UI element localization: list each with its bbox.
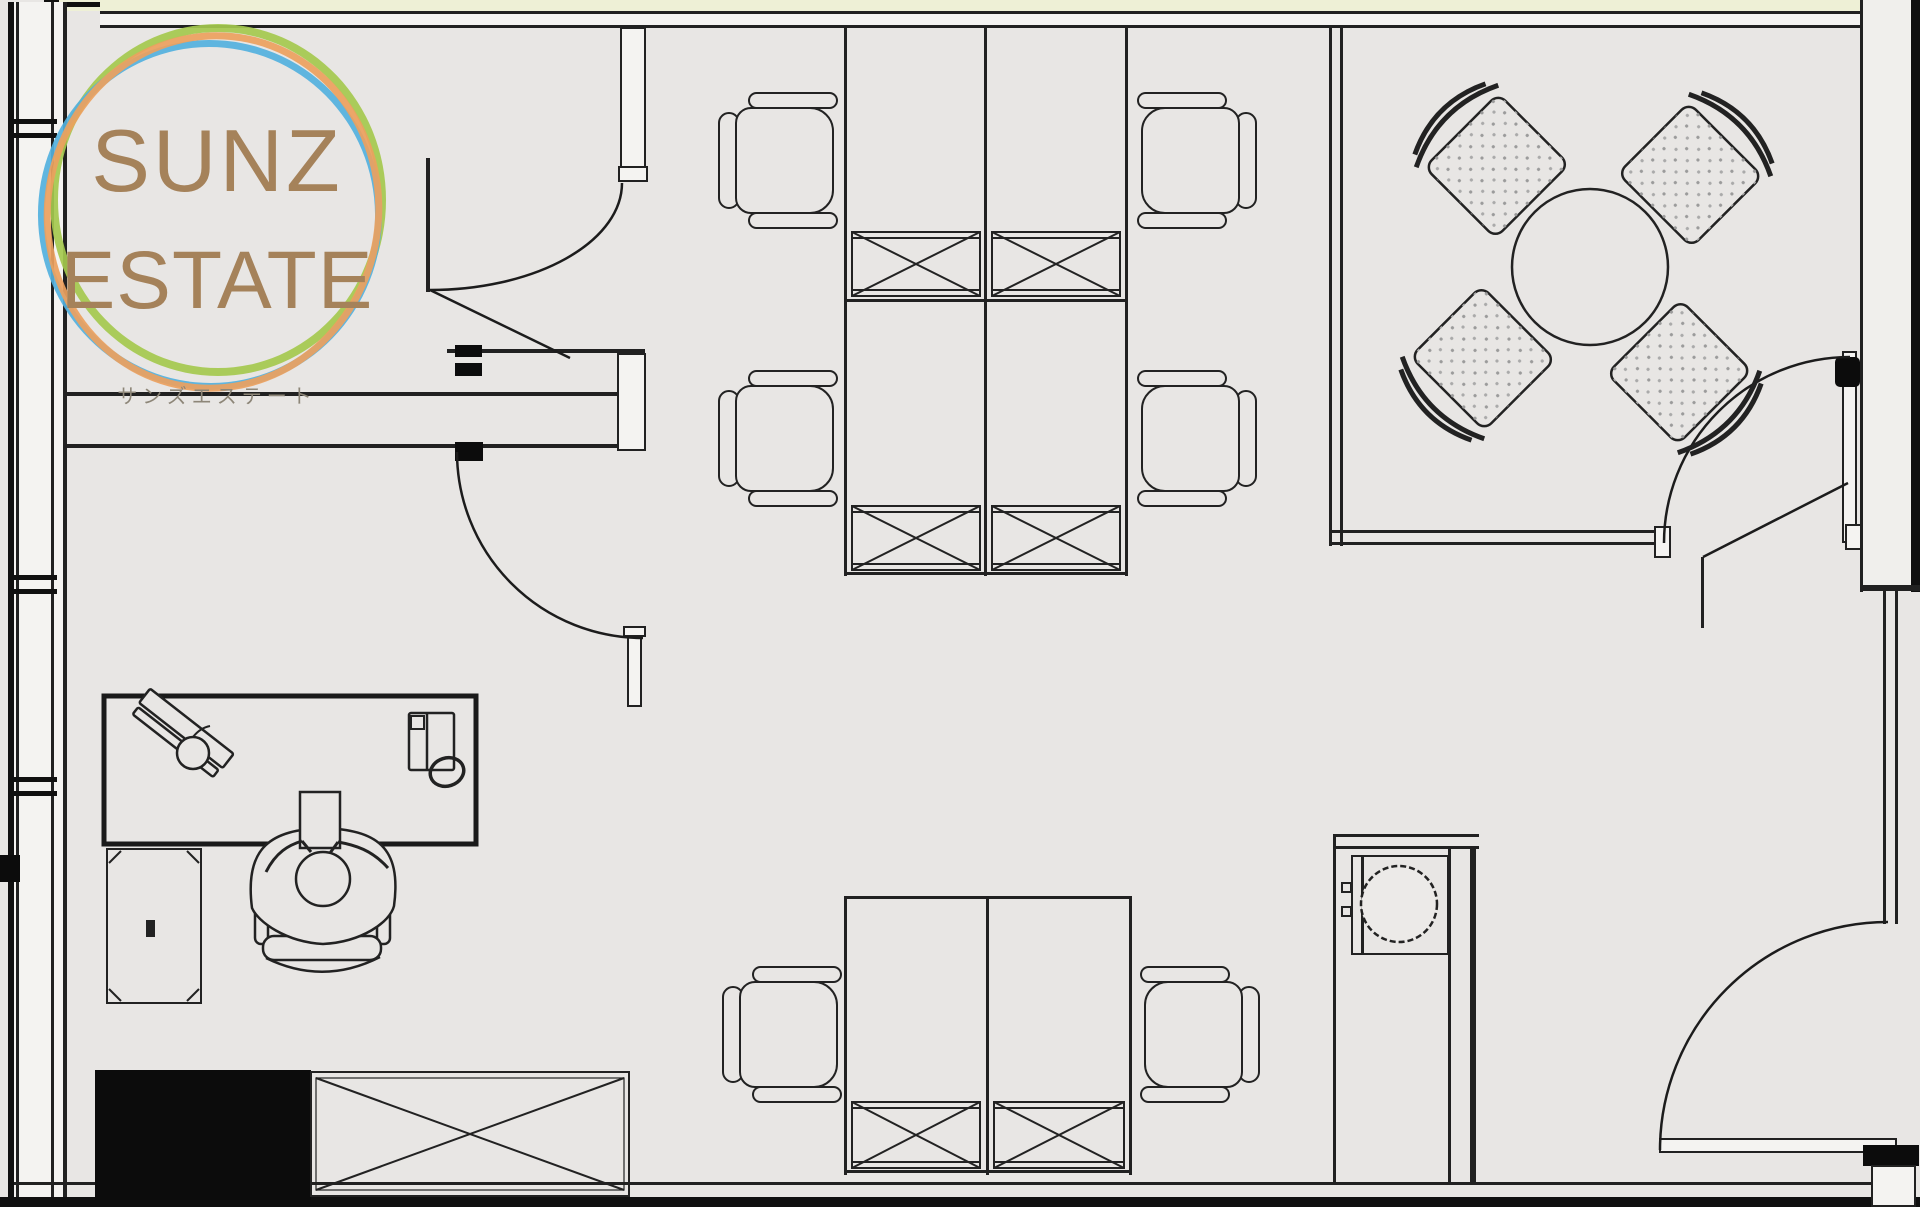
drawer-unit-4 — [992, 506, 1120, 570]
wall-right-outer — [1911, 0, 1920, 592]
logo-subtitle-japanese: サンズエステート — [36, 380, 398, 409]
chair-seat — [739, 981, 838, 1088]
inner-door-swing-arc — [457, 452, 643, 638]
meeting-door-handle — [1835, 357, 1860, 387]
wall-stub-entry — [426, 158, 430, 292]
wall-divider-lower — [66, 444, 645, 448]
toilet-button-1 — [1341, 882, 1352, 893]
wall-meeting-left-b — [1340, 27, 1343, 546]
chair-seat — [1144, 981, 1243, 1088]
entry-door-leaf — [620, 27, 646, 177]
person-arm-right — [338, 842, 388, 868]
desk-cluster-bottom-bottom-line — [844, 1170, 1132, 1173]
window-right-a — [1883, 591, 1886, 924]
chair-armrest — [1140, 966, 1230, 983]
meeting-chair-3 — [1387, 282, 1560, 455]
chair-armrest — [748, 212, 838, 229]
inner-door-leaf — [627, 635, 642, 707]
entrance-door-swing-arc — [1660, 922, 1888, 1150]
top-accent-strip — [55, 0, 1920, 11]
chair-armrest — [748, 490, 838, 507]
door-jamb-post — [617, 353, 646, 451]
brand-logo: SUNZ ESTATE サンズエステート — [36, 22, 398, 406]
toilet-enclosure-inner-line — [1361, 855, 1364, 955]
entry-door-foot — [618, 166, 648, 182]
chair-seat — [735, 107, 834, 214]
door-hinge-mark-3 — [455, 442, 483, 461]
task-chair-3 — [1130, 92, 1257, 229]
window-mullion-3a — [8, 777, 57, 782]
wall-meeting-bottom-a — [1329, 530, 1663, 533]
storage-black-unit — [95, 1070, 311, 1200]
mouse-cable — [193, 726, 210, 737]
drawer-unit-5 — [852, 1102, 980, 1168]
entry-door-open-leaf — [430, 290, 570, 358]
chair-armrest — [1137, 370, 1227, 387]
meeting-door-swing-arc — [1664, 357, 1850, 543]
meeting-chair-4 — [1603, 296, 1776, 469]
door-hinge-mark-2 — [455, 363, 482, 376]
entrance-door-hinge-cap — [1863, 1145, 1919, 1166]
wall-toilet-left — [1333, 834, 1336, 1185]
entry-partition-post — [1701, 557, 1704, 628]
door-hinge-mark-1 — [455, 345, 482, 357]
task-chair-2 — [718, 370, 845, 507]
entry-partition-diagonal — [1703, 483, 1848, 557]
drawer-unit-3 — [852, 506, 980, 570]
chair-seat — [1141, 107, 1240, 214]
keyboard — [131, 689, 234, 779]
person-hand-right — [330, 842, 338, 853]
chair-armrest — [752, 1086, 842, 1103]
entry-door-swing-arc — [430, 183, 622, 290]
person-arm-left — [266, 841, 302, 872]
entrance-door-leaf — [1659, 1138, 1897, 1153]
chair-seat — [1141, 385, 1240, 492]
person-head — [296, 852, 350, 906]
mouse — [177, 737, 209, 769]
chair-armrest — [1137, 490, 1227, 507]
drawer-unit-2 — [992, 232, 1120, 296]
wall-right-end-cap — [1860, 585, 1920, 591]
reception-chair — [255, 891, 390, 972]
window-mullion-2a — [8, 575, 57, 580]
window-mullion-3b — [8, 791, 57, 796]
wall-left-line-1 — [16, 2, 19, 1202]
task-chair-4 — [1130, 370, 1257, 507]
chair-seat — [735, 385, 834, 492]
desk-cluster-top-bottom-line — [844, 572, 1128, 575]
window-right-b — [1895, 591, 1898, 924]
meeting-door-foot — [1845, 524, 1862, 550]
drawer-unit-6 — [994, 1102, 1124, 1168]
logo-title-line2: ESTATE — [36, 234, 398, 328]
toilet-button-2 — [1341, 906, 1352, 917]
wall-meeting-bottom-b — [1329, 542, 1663, 545]
wall-left-outer — [8, 2, 14, 1204]
wall-right-inner-face — [1860, 0, 1863, 592]
desk-cluster-bottom-divider — [986, 896, 989, 1175]
wall-meeting-left-a — [1329, 27, 1332, 546]
chair-armrest — [748, 92, 838, 109]
wall-end-cap — [1654, 526, 1671, 558]
desk-cluster-bottom-edge-right — [1129, 896, 1132, 1175]
drawer-unit-1 — [852, 232, 980, 296]
document — [300, 792, 340, 848]
desk-phone — [409, 713, 467, 791]
wall-left-pier — [0, 855, 20, 882]
storage-unit-x — [311, 1072, 629, 1196]
meeting-table — [1512, 189, 1668, 345]
person-hand-left — [302, 841, 311, 852]
logo-title-line1: SUNZ — [36, 110, 398, 212]
task-chair-5 — [722, 966, 849, 1103]
chair-armrest — [1137, 92, 1227, 109]
wall-toilet-top-b — [1333, 846, 1479, 849]
reception-desk — [104, 696, 476, 844]
toilet-enclosure — [1351, 855, 1449, 955]
person-shoulders — [251, 828, 396, 944]
meeting-chair-2 — [1614, 79, 1787, 252]
task-chair-1 — [718, 92, 845, 229]
desk-cluster-top-mid-line — [844, 299, 1128, 302]
side-cabinet — [107, 849, 201, 1003]
chair-armrest — [1140, 1086, 1230, 1103]
chair-armrest — [1137, 212, 1227, 229]
chair-armrest — [748, 370, 838, 387]
wall-toilet-right-b — [1470, 849, 1476, 1185]
floor-plan: SUNZ ESTATE サンズエステート — [0, 0, 1920, 1207]
entrance-side-wall — [1871, 1165, 1916, 1207]
window-mullion-2b — [8, 589, 57, 594]
wall-toilet-top-a — [1333, 834, 1479, 837]
meeting-chair-1 — [1401, 70, 1574, 243]
chair-armrest — [752, 966, 842, 983]
person-receptionist — [251, 792, 396, 944]
task-chair-6 — [1133, 966, 1260, 1103]
